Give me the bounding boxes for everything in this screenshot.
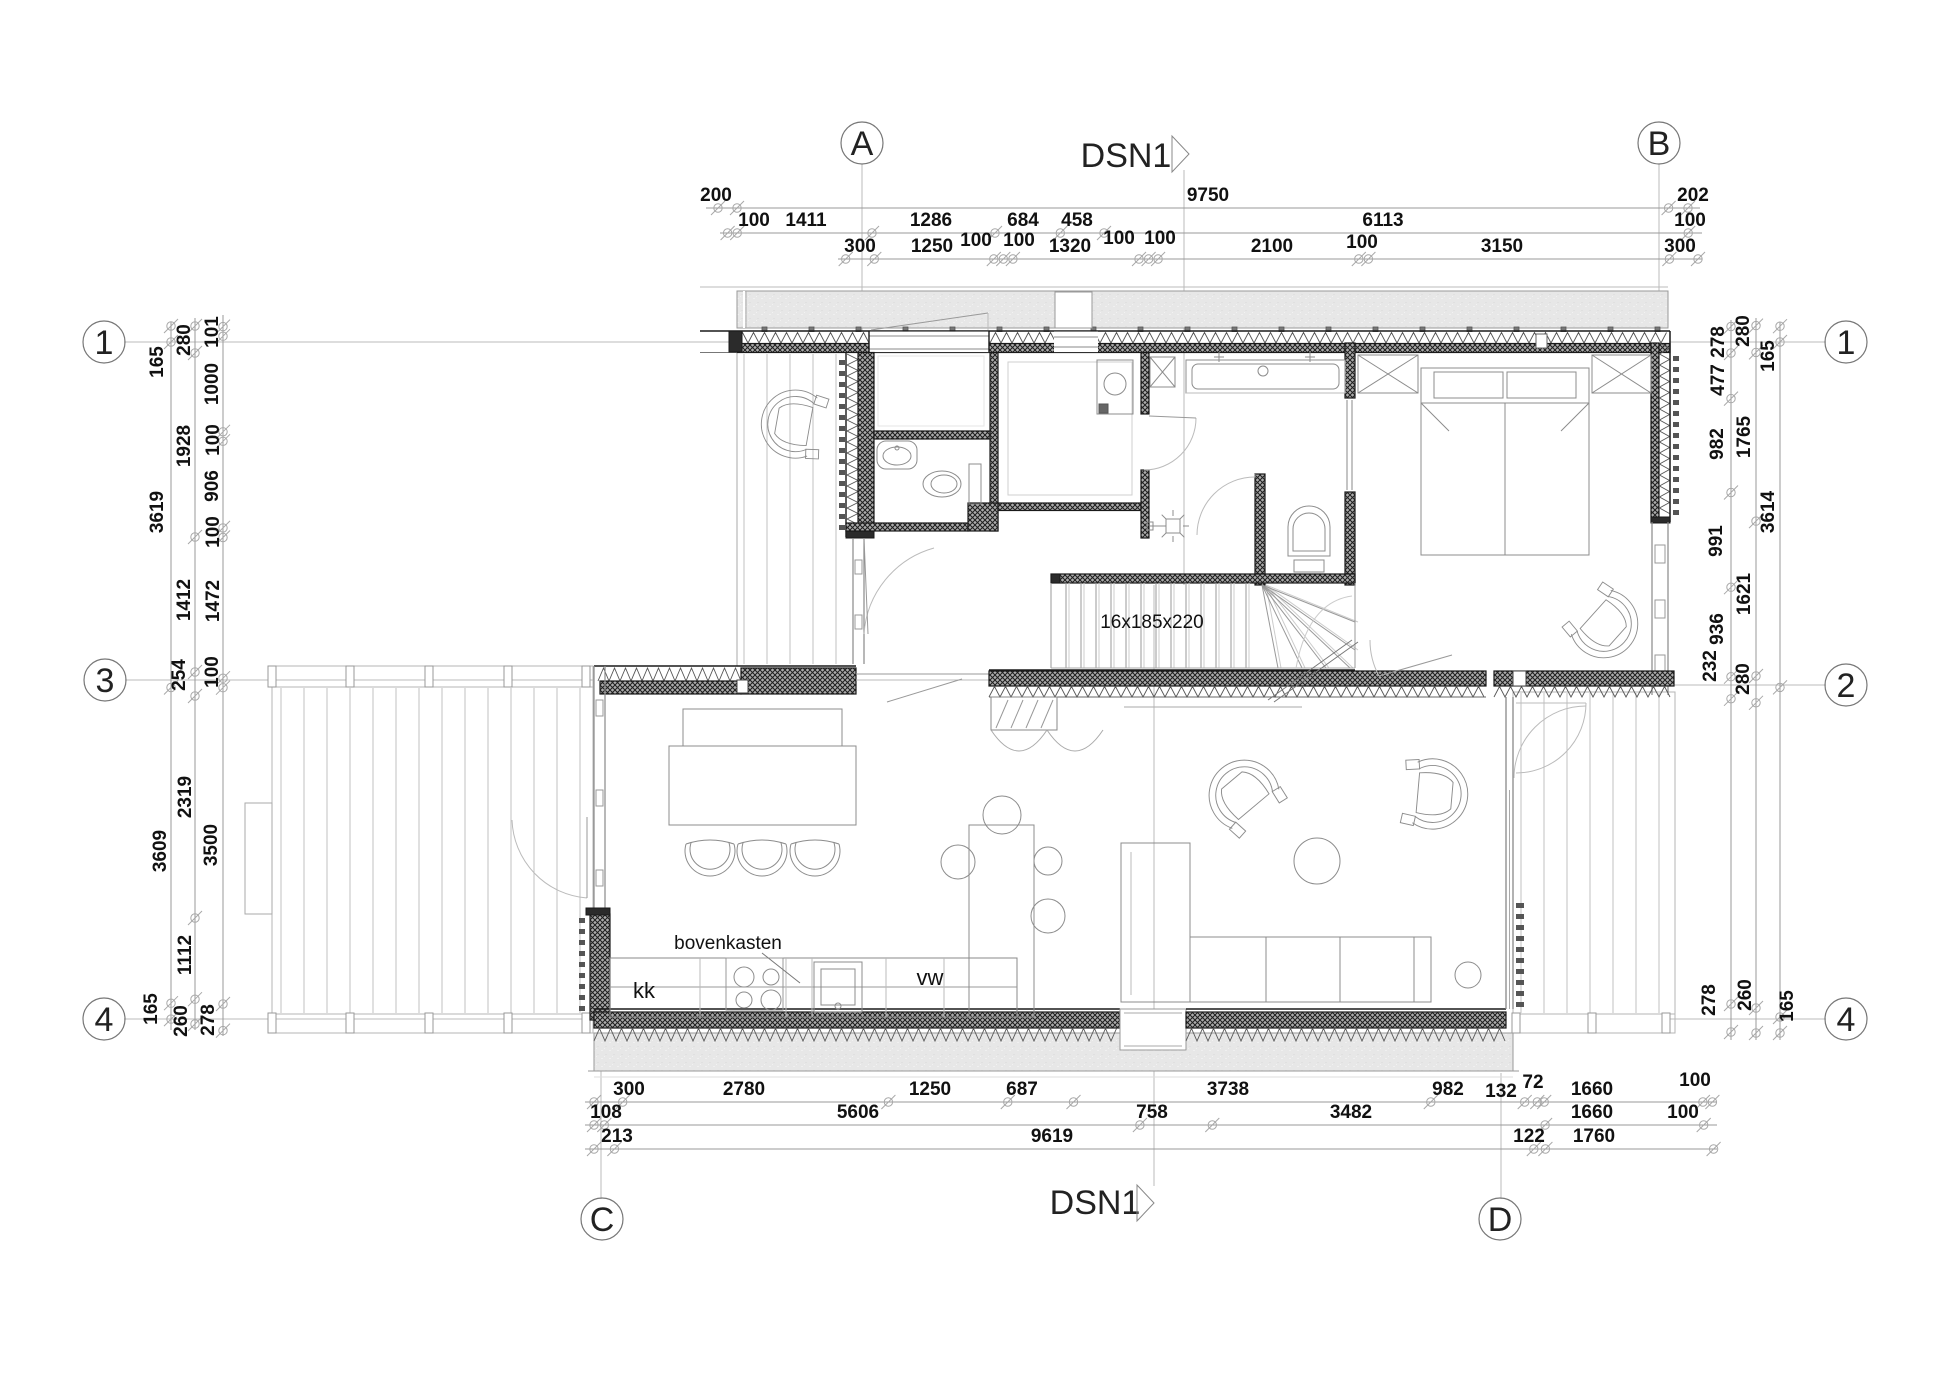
svg-text:687: 687 bbox=[1006, 1079, 1038, 1100]
svg-text:100: 100 bbox=[203, 424, 224, 456]
svg-text:3150: 3150 bbox=[1481, 236, 1523, 257]
svg-text:1765: 1765 bbox=[1734, 415, 1755, 458]
svg-text:122: 122 bbox=[1513, 1126, 1545, 1147]
svg-text:3609: 3609 bbox=[150, 830, 171, 872]
svg-text:5606: 5606 bbox=[837, 1102, 879, 1123]
svg-text:100: 100 bbox=[1679, 1070, 1711, 1091]
svg-text:165: 165 bbox=[147, 346, 168, 378]
svg-text:936: 936 bbox=[1707, 613, 1728, 645]
svg-text:100: 100 bbox=[1103, 228, 1135, 249]
svg-text:A: A bbox=[851, 125, 874, 163]
svg-text:3500: 3500 bbox=[201, 824, 222, 866]
svg-text:1: 1 bbox=[1837, 324, 1856, 362]
svg-text:165: 165 bbox=[1777, 990, 1798, 1022]
svg-text:B: B bbox=[1648, 125, 1671, 163]
svg-text:2: 2 bbox=[1837, 667, 1856, 705]
svg-text:72: 72 bbox=[1522, 1072, 1543, 1093]
svg-text:1250: 1250 bbox=[909, 1079, 951, 1100]
svg-text:C: C bbox=[590, 1201, 615, 1239]
svg-text:260: 260 bbox=[1735, 979, 1756, 1011]
svg-text:1411: 1411 bbox=[785, 210, 827, 231]
svg-text:DSN1: DSN1 bbox=[1050, 1184, 1141, 1222]
svg-text:4: 4 bbox=[1837, 1001, 1856, 1039]
svg-text:2319: 2319 bbox=[175, 776, 196, 818]
svg-text:100: 100 bbox=[1667, 1102, 1699, 1123]
svg-text:108: 108 bbox=[590, 1102, 622, 1123]
svg-text:1621: 1621 bbox=[1734, 572, 1755, 615]
svg-text:101: 101 bbox=[202, 316, 223, 348]
svg-text:4: 4 bbox=[95, 1001, 114, 1039]
svg-text:458: 458 bbox=[1061, 210, 1093, 231]
svg-text:100: 100 bbox=[1144, 228, 1176, 249]
svg-text:1660: 1660 bbox=[1571, 1079, 1613, 1100]
svg-text:1660: 1660 bbox=[1571, 1102, 1613, 1123]
svg-text:300: 300 bbox=[844, 236, 876, 257]
svg-text:1760: 1760 bbox=[1573, 1126, 1615, 1147]
svg-text:278: 278 bbox=[198, 1004, 219, 1036]
svg-text:260: 260 bbox=[171, 1005, 192, 1037]
svg-text:3738: 3738 bbox=[1207, 1079, 1249, 1100]
svg-text:165: 165 bbox=[141, 993, 162, 1025]
svg-text:991: 991 bbox=[1706, 525, 1727, 557]
svg-text:3: 3 bbox=[96, 662, 115, 700]
svg-text:1472: 1472 bbox=[203, 580, 224, 622]
svg-text:906: 906 bbox=[202, 470, 223, 502]
svg-text:9750: 9750 bbox=[1187, 185, 1229, 206]
svg-text:bovenkasten: bovenkasten bbox=[674, 933, 782, 954]
svg-text:278: 278 bbox=[1708, 326, 1729, 358]
svg-text:3614: 3614 bbox=[1758, 490, 1779, 533]
svg-text:280: 280 bbox=[1733, 315, 1754, 347]
svg-text:6113: 6113 bbox=[1362, 210, 1403, 231]
svg-text:300: 300 bbox=[613, 1079, 645, 1100]
svg-text:100: 100 bbox=[1003, 230, 1035, 251]
svg-text:1320: 1320 bbox=[1049, 236, 1091, 257]
svg-text:9619: 9619 bbox=[1031, 1126, 1073, 1147]
svg-text:684: 684 bbox=[1007, 210, 1039, 231]
svg-text:DSN1: DSN1 bbox=[1081, 137, 1172, 175]
svg-text:16x185x220: 16x185x220 bbox=[1100, 612, 1204, 633]
svg-text:100: 100 bbox=[738, 210, 770, 231]
svg-text:1928: 1928 bbox=[174, 425, 195, 467]
svg-text:3482: 3482 bbox=[1330, 1102, 1372, 1123]
svg-text:280: 280 bbox=[1733, 663, 1754, 695]
svg-text:1250: 1250 bbox=[911, 236, 953, 257]
svg-text:100: 100 bbox=[1674, 210, 1706, 231]
svg-text:1286: 1286 bbox=[910, 210, 952, 231]
svg-text:2780: 2780 bbox=[723, 1079, 765, 1100]
svg-text:1112: 1112 bbox=[175, 935, 196, 975]
svg-text:254: 254 bbox=[169, 659, 190, 691]
svg-text:982: 982 bbox=[1707, 428, 1728, 460]
svg-text:D: D bbox=[1488, 1201, 1513, 1239]
svg-text:1412: 1412 bbox=[174, 579, 195, 621]
svg-text:278: 278 bbox=[1699, 984, 1720, 1016]
svg-text:300: 300 bbox=[1664, 236, 1696, 257]
svg-text:280: 280 bbox=[174, 324, 195, 356]
svg-text:982: 982 bbox=[1432, 1079, 1464, 1100]
svg-text:200: 200 bbox=[700, 185, 732, 206]
svg-text:213: 213 bbox=[601, 1126, 633, 1147]
svg-text:100: 100 bbox=[203, 516, 224, 548]
svg-text:165: 165 bbox=[1758, 340, 1779, 372]
svg-text:232: 232 bbox=[1700, 650, 1721, 682]
svg-text:758: 758 bbox=[1136, 1102, 1168, 1123]
svg-text:132: 132 bbox=[1485, 1081, 1517, 1102]
svg-text:2100: 2100 bbox=[1251, 236, 1293, 257]
svg-text:100: 100 bbox=[202, 656, 223, 688]
svg-text:vw: vw bbox=[917, 965, 944, 990]
svg-text:100: 100 bbox=[960, 230, 992, 251]
svg-text:1000: 1000 bbox=[202, 363, 223, 405]
svg-text:3619: 3619 bbox=[147, 491, 168, 533]
svg-text:100: 100 bbox=[1346, 232, 1378, 253]
svg-text:477: 477 bbox=[1708, 364, 1729, 396]
svg-text:1: 1 bbox=[95, 324, 114, 362]
svg-text:202: 202 bbox=[1677, 185, 1709, 206]
svg-text:kk: kk bbox=[633, 978, 656, 1003]
